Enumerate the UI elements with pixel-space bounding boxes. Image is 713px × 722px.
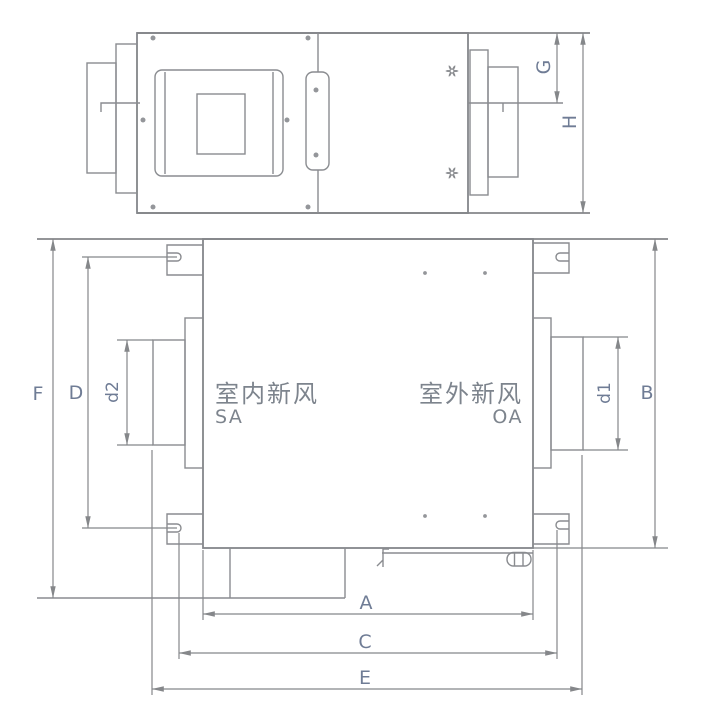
side-view: G H [87, 33, 590, 213]
dimension-f: F [33, 239, 53, 598]
hrv-dimension-diagram: G H [0, 0, 713, 722]
screw-icon [423, 514, 427, 518]
mounting-bracket-top-right [533, 243, 569, 273]
dimension-h: H [559, 33, 583, 213]
dimension-d1: d1 [595, 337, 618, 450]
dimension-c: C [179, 631, 557, 653]
screw-icon [483, 271, 487, 275]
access-panel-window [197, 94, 245, 154]
bottom-rail [377, 549, 533, 567]
duct-flange-left-plan [153, 318, 203, 468]
screw-icon [483, 514, 487, 518]
screw-icon [151, 36, 156, 41]
dim-label-d: D [69, 382, 84, 404]
electrical-box [37, 548, 345, 598]
mounting-bracket-top-left [167, 245, 203, 275]
duct-collar [551, 337, 583, 450]
screw-icon [151, 205, 156, 210]
mounting-bracket-bottom-right [533, 514, 569, 544]
bracket-tab [533, 243, 569, 273]
flange-plate [470, 50, 488, 195]
unit-body-side [137, 33, 468, 213]
outdoor-port-code: OA [492, 406, 523, 428]
dim-label-c: C [358, 631, 371, 653]
flange-plate [533, 318, 551, 468]
dimension-b: B [640, 239, 655, 548]
duct-flange-left-side [87, 44, 140, 193]
dim-label-f: F [33, 383, 44, 405]
screw-icon [314, 88, 319, 93]
extension-lines [82, 257, 668, 695]
supply-port-code: SA [215, 406, 243, 428]
dimension-d2: d2 [103, 340, 127, 445]
port-labels: 室内新风 SA 室外新风 OA [215, 380, 523, 428]
duct-collar [488, 67, 518, 177]
screw-icon [141, 118, 146, 123]
rail-hook [377, 549, 389, 567]
screw-icon [423, 271, 427, 275]
hanging-bracket-profile [101, 103, 140, 112]
screw-icon [306, 205, 311, 210]
dim-label-d1: d1 [595, 382, 615, 404]
diagram-page: G H [0, 0, 713, 722]
dim-label-d2: d2 [103, 381, 123, 403]
dimension-d: D [69, 257, 88, 528]
outdoor-port-name: 室外新风 [419, 380, 523, 408]
duct-collar [87, 63, 116, 173]
flange-plate [116, 44, 137, 193]
mounting-bracket-bottom-left [167, 514, 203, 544]
cable-gland-icon [507, 553, 531, 567]
star-knob-icon [447, 169, 457, 178]
dimension-g: G [533, 33, 557, 103]
screw-icon [306, 36, 311, 41]
dim-label-g: G [533, 60, 555, 75]
dim-label-b: B [640, 382, 653, 404]
duct-collar [153, 340, 185, 445]
plan-view: 室内新风 SA 室外新风 OA F D [33, 239, 668, 695]
bracket-slot [556, 521, 569, 529]
access-panel-outline [155, 70, 283, 176]
dim-label-h: H [559, 115, 581, 129]
flange-plate [185, 318, 203, 468]
screw-icon [314, 153, 319, 158]
bracket-tab [167, 245, 203, 275]
dimension-e: E [152, 667, 582, 689]
dim-label-a: A [360, 592, 373, 614]
handle [306, 72, 329, 170]
dimension-a: A [203, 592, 533, 614]
star-knob-icon [447, 67, 457, 76]
supply-port-name: 室内新风 [215, 380, 319, 408]
screw-icon [285, 118, 290, 123]
bracket-tab [167, 514, 203, 544]
access-panel [155, 70, 283, 176]
bracket-slot [556, 253, 569, 261]
duct-flange-right-plan [533, 318, 583, 468]
body-screws [141, 36, 311, 210]
dim-label-e: E [359, 667, 371, 689]
